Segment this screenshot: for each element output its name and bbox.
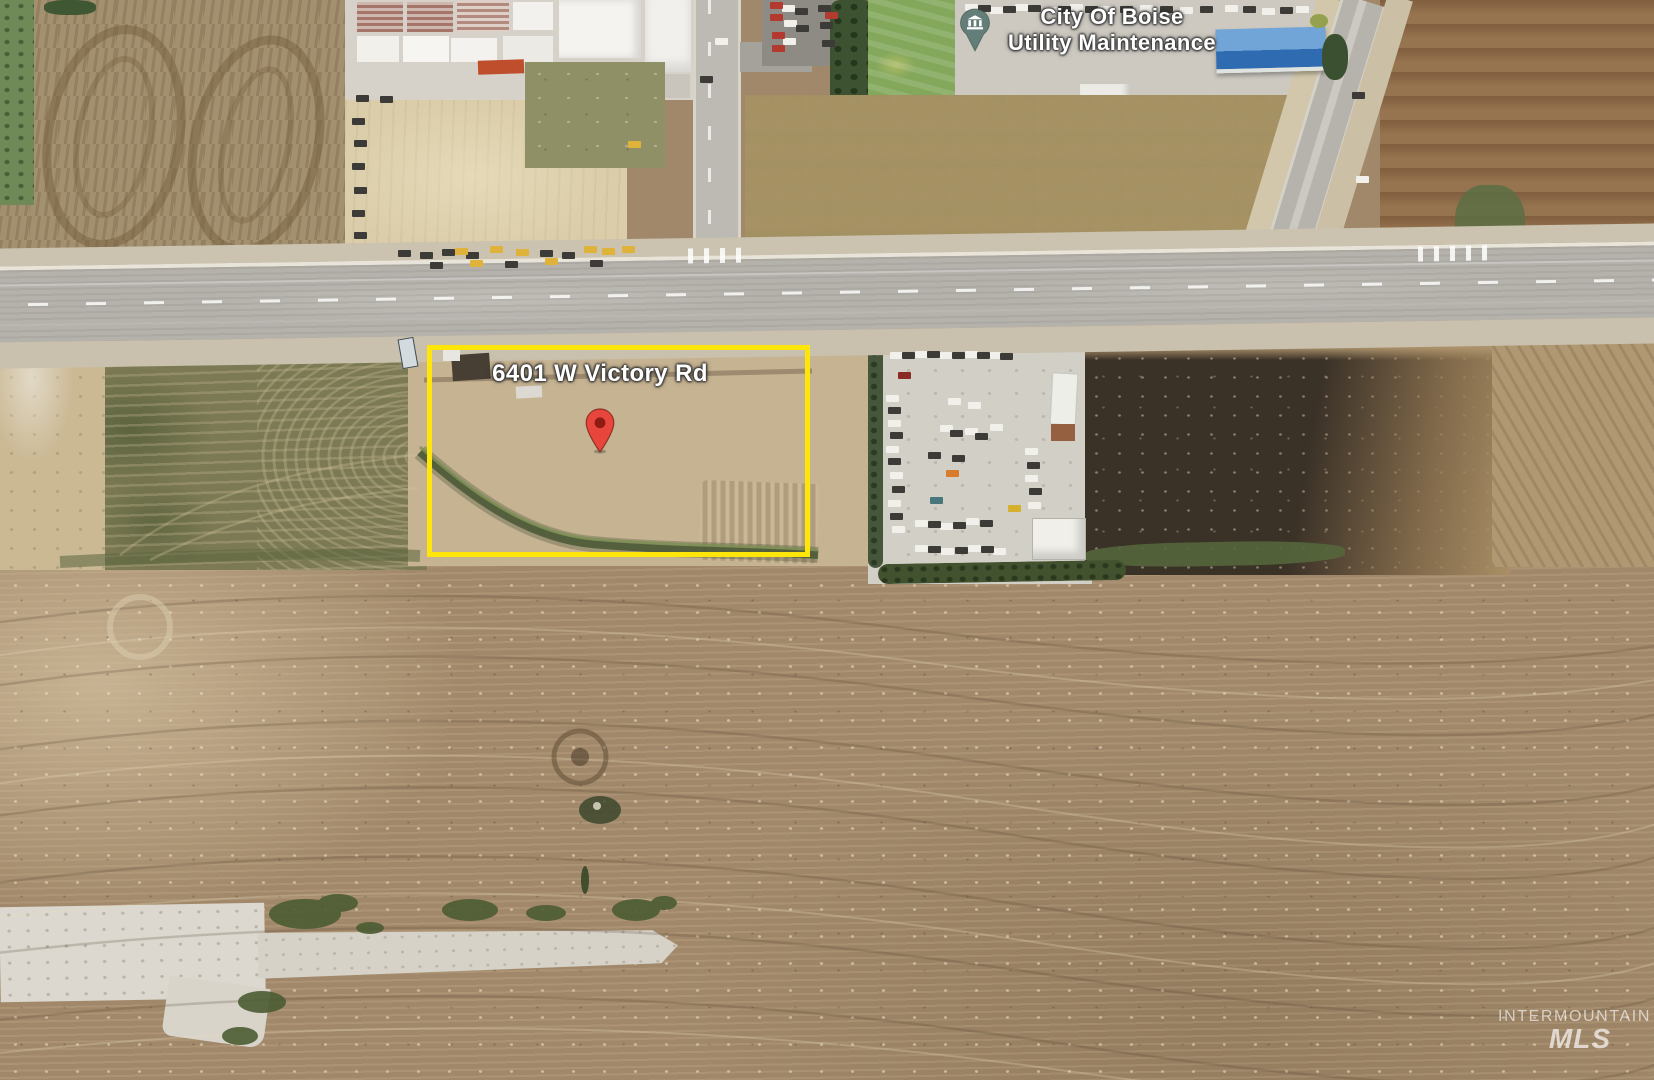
side-road-vertical: [693, 0, 741, 272]
address-label: 6401 W Victory Rd: [492, 360, 708, 388]
poi-label-line2: Utility Maintenance: [1008, 30, 1216, 56]
field-dark-burned: [1085, 330, 1510, 575]
tree-row-icon: [44, 0, 96, 15]
crosswalk: [1418, 245, 1488, 261]
government-building-pin-icon[interactable]: [959, 8, 991, 52]
tree-icon: [1322, 34, 1348, 80]
field-track-marks: [28, 6, 358, 274]
vegetation-strip-left: [0, 0, 34, 205]
blue-roof-building: [1215, 27, 1326, 74]
parking-lot: [762, 0, 836, 66]
grass-patch: [525, 62, 665, 168]
watermark-mls: MLS: [1414, 1024, 1611, 1055]
location-pin-icon[interactable]: [585, 408, 615, 454]
canopy-white: [1049, 371, 1080, 426]
shipping-container: [478, 59, 524, 75]
satellite-map-image: City Of Boise Utility Maintenance 6401 W…: [0, 0, 1654, 1080]
field-right-tan: [1492, 315, 1654, 567]
poi-label: City Of Boise Utility Maintenance: [1008, 4, 1216, 56]
poi-label-line1: City Of Boise: [1008, 4, 1216, 30]
shed-brown: [1051, 424, 1075, 441]
field-below-road-left: [105, 335, 427, 570]
mls-watermark: INTERMOUNTAIN MLS: [1414, 1008, 1654, 1054]
warehouse-white: [1032, 518, 1086, 560]
bush-icon: [1310, 14, 1328, 28]
crosswalk: [688, 247, 750, 263]
main-road-victory: [0, 223, 1654, 369]
